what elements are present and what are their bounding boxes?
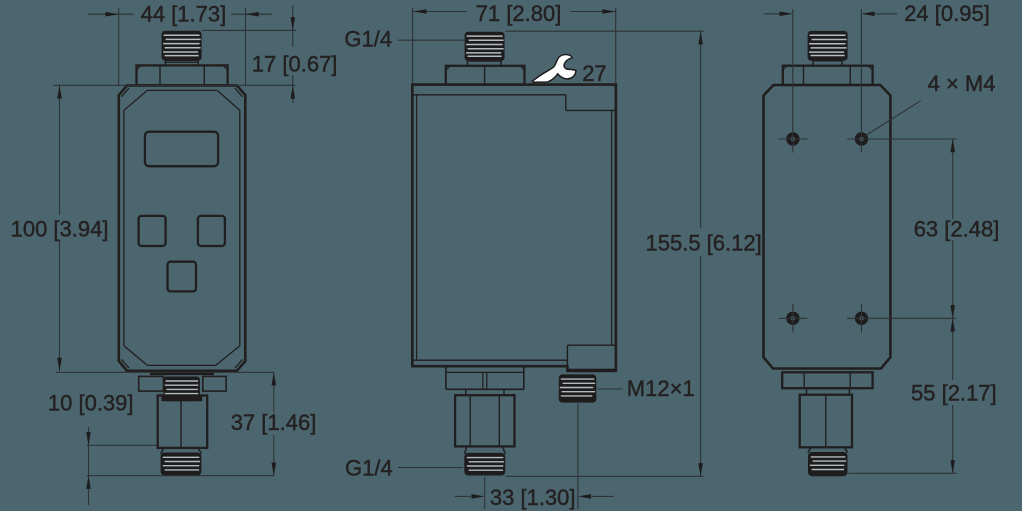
svg-text:4 × M4: 4 × M4 [928, 71, 996, 96]
svg-text:44 [1.73]: 44 [1.73] [141, 2, 227, 27]
svg-text:55 [2.17]: 55 [2.17] [911, 380, 997, 405]
svg-text:71 [2.80]: 71 [2.80] [476, 1, 562, 26]
svg-text:27: 27 [582, 61, 606, 86]
svg-text:M12×1: M12×1 [627, 376, 695, 401]
svg-text:33 [1.30]: 33 [1.30] [490, 485, 576, 510]
svg-text:63 [2.48]: 63 [2.48] [914, 216, 1000, 241]
svg-text:17 [0.67]: 17 [0.67] [252, 51, 338, 76]
svg-text:155.5 [6.12]: 155.5 [6.12] [646, 230, 762, 255]
svg-text:37 [1.46]: 37 [1.46] [231, 410, 317, 435]
svg-text:G1/4: G1/4 [345, 456, 393, 481]
svg-text:100 [3.94]: 100 [3.94] [11, 216, 109, 241]
svg-text:G1/4: G1/4 [344, 26, 392, 51]
svg-text:10 [0.39]: 10 [0.39] [48, 391, 134, 416]
svg-text:24 [0.95]: 24 [0.95] [904, 1, 990, 26]
